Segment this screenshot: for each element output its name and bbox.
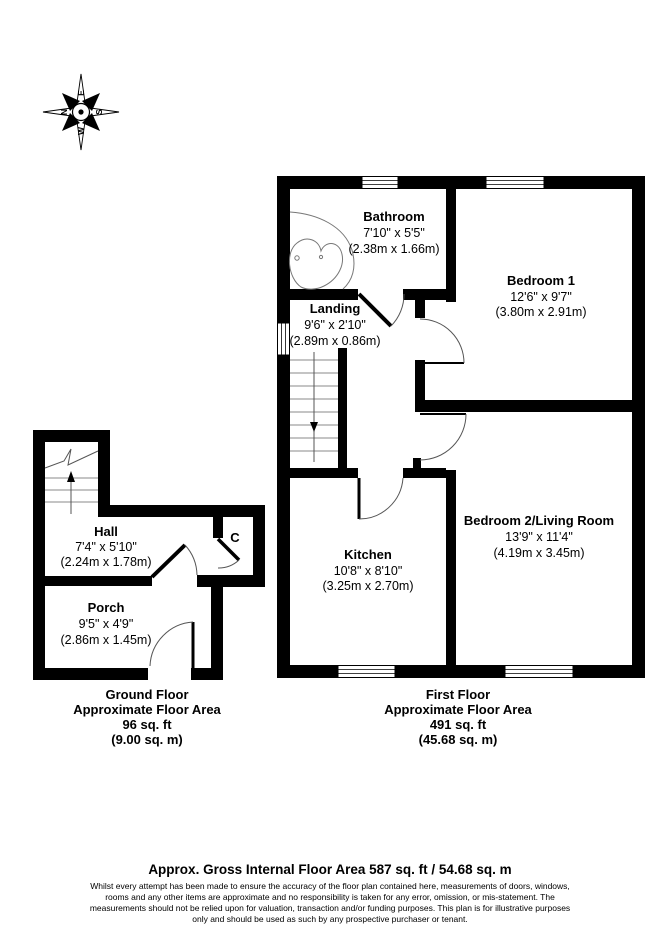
landing-imperial: 9'6" x 2'10": [304, 318, 366, 332]
hall-metric: (2.24m x 1.78m): [60, 555, 151, 569]
porch-imperial: 9'5" x 4'9": [79, 617, 134, 631]
stair-break-line: [45, 449, 98, 468]
landing-metric: (2.89m x 0.86m): [289, 334, 380, 348]
window-symbol: [505, 666, 573, 678]
window-symbol: [486, 177, 544, 189]
ground-floor-approx: Approximate Floor Area: [73, 702, 221, 717]
first-floor-walls: [277, 176, 645, 678]
ground-floor-area-caption: Ground Floor Approximate Floor Area 96 s…: [73, 687, 221, 747]
cupboard-label: C: [230, 530, 240, 545]
hall-label: Hall: [94, 524, 118, 539]
kitchen-label: Kitchen: [344, 547, 392, 562]
bedroom1-metric: (3.80m x 2.91m): [495, 305, 586, 319]
compass-center-dot: [78, 109, 83, 114]
footer: Approx. Gross Internal Floor Area 587 sq…: [90, 862, 570, 924]
bedroom2-label: Bedroom 2/Living Room: [464, 513, 614, 528]
porch-metric: (2.86m x 1.45m): [60, 633, 151, 647]
bathtub-icon: [289, 212, 354, 289]
kitchen-door: [359, 478, 403, 519]
first-floor-sqft: 491 sq. ft: [430, 717, 487, 732]
disclaimer-line-2: rooms and any other items are approximat…: [105, 892, 555, 902]
staircase-first-floor: [290, 352, 338, 462]
kitchen-imperial: 10'8" x 8'10": [334, 564, 403, 578]
staircase-ground-floor: [45, 449, 98, 514]
compass-label-n: N: [59, 109, 69, 115]
window-symbol: [338, 666, 395, 678]
disclaimer-line-3: measurements should not be relied upon f…: [90, 903, 570, 913]
disclaimer-line-4: only and should be used as such by any p…: [192, 914, 467, 924]
bathroom-imperial: 7'10" x 5'5": [363, 226, 425, 240]
bedroom1-imperial: 12'6" x 9'7": [510, 290, 572, 304]
ground-floor-sqft: 96 sq. ft: [122, 717, 172, 732]
compass-label-e: E: [76, 90, 86, 96]
bedroom2-imperial: 13'9" x 11'4": [505, 530, 573, 544]
kitchen-metric: (3.25m x 2.70m): [322, 579, 413, 593]
bathroom-metric: (2.38m x 1.66m): [348, 242, 439, 256]
stairs-up-arrow: [67, 471, 75, 482]
ground-floor-plan: Hall 7'4" x 5'10" (2.24m x 1.78m) Porch …: [33, 430, 265, 680]
window-symbol: [362, 177, 398, 189]
disclaimer-line-1: Whilst every attempt has been made to en…: [90, 881, 570, 891]
compass-rose: N E S W: [43, 74, 119, 150]
hall-imperial: 7'4" x 5'10": [75, 540, 137, 554]
floor-plan-page: N E S W: [0, 0, 670, 948]
door-swings-ground-floor: [150, 539, 239, 668]
bedroom2-metric: (4.19m x 3.45m): [493, 546, 584, 560]
first-floor-plan: Bathroom 7'10" x 5'5" (2.38m x 1.66m) Be…: [277, 176, 645, 678]
ground-floor-title: Ground Floor: [105, 687, 188, 702]
porch-label: Porch: [88, 600, 125, 615]
window-symbol: [278, 323, 290, 355]
landing-label: Landing: [310, 301, 361, 316]
compass-label-s: S: [94, 109, 104, 115]
hall-door: [152, 545, 197, 577]
bathroom-label: Bathroom: [363, 209, 424, 224]
first-floor-title: First Floor: [426, 687, 490, 702]
floor-plan-drawing: N E S W: [0, 0, 670, 948]
first-floor-approx: Approximate Floor Area: [384, 702, 532, 717]
compass-label-w: W: [76, 126, 86, 135]
bedroom1-door: [420, 319, 464, 363]
front-door: [150, 622, 193, 668]
first-floor-area-caption: First Floor Approximate Floor Area 491 s…: [384, 687, 532, 747]
bedroom2-door: [420, 414, 466, 460]
stairs-down-arrow: [310, 422, 318, 432]
gross-area-title: Approx. Gross Internal Floor Area 587 sq…: [148, 862, 511, 877]
first-floor-sqm: (45.68 sq. m): [419, 732, 498, 747]
ground-floor-sqm: (9.00 sq. m): [111, 732, 183, 747]
bedroom1-label: Bedroom 1: [507, 273, 575, 288]
